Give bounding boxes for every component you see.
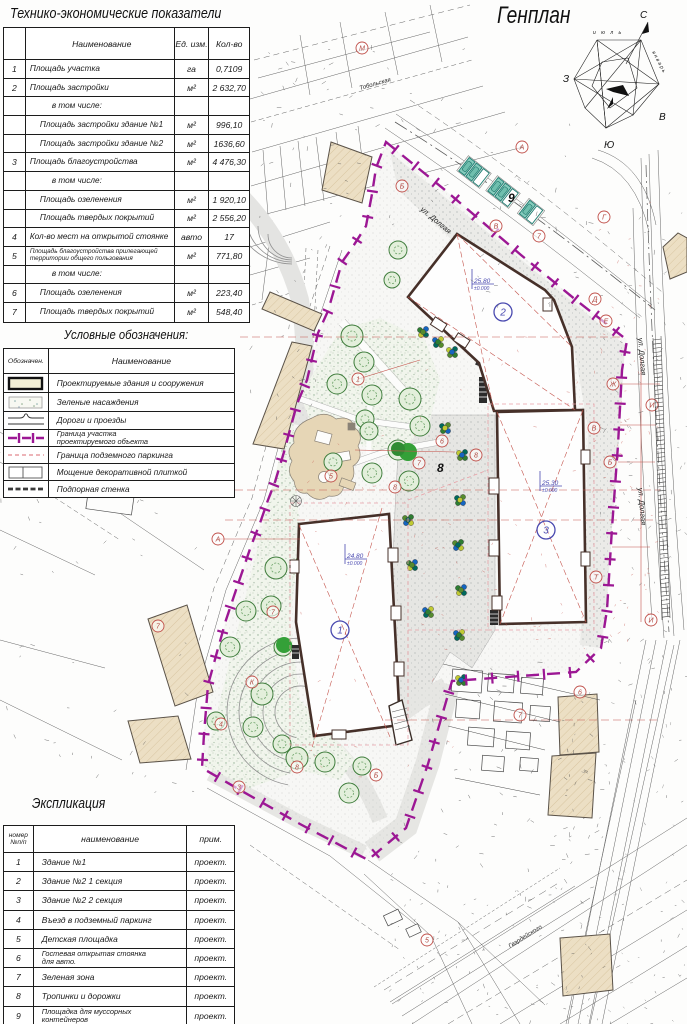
svg-text:З: З [563,74,569,85]
svg-text:4: 4 [219,722,223,729]
svg-text:8: 8 [474,453,478,460]
svg-text:Б: Б [400,184,405,191]
svg-text:±0.000: ±0.000 [347,561,362,567]
svg-text:Тобольская: Тобольская [359,77,392,92]
svg-text:±0.000: ±0.000 [474,286,489,292]
svg-text:2: 2 [499,308,506,319]
svg-text:М: М [359,46,365,53]
svg-text:А: А [215,537,221,544]
svg-text:Е: Е [604,319,609,326]
svg-text:В: В [659,112,666,123]
svg-text:С: С [640,10,648,21]
svg-text:1: 1 [337,626,343,637]
svg-text:6: 6 [578,690,582,697]
svg-text:ул. Долгая: ул. Долгая [636,336,648,375]
svg-text:Ж: Ж [609,382,617,389]
svg-text:Т: Т [594,575,599,582]
svg-text:3: 3 [237,785,241,792]
svg-text:Б: Б [374,773,379,780]
svg-text:В: В [592,426,597,433]
svg-text:8: 8 [437,461,444,475]
svg-text:Ю: Ю [604,140,614,151]
svg-text:9: 9 [508,191,515,205]
svg-text:5: 5 [425,938,429,945]
svg-text:5: 5 [329,474,333,481]
svg-text:1: 1 [356,377,360,384]
svg-text:В: В [494,224,499,231]
svg-text:Д: Д [592,297,598,304]
svg-text:24.80: 24.80 [346,553,364,560]
svg-text:8: 8 [393,485,397,492]
svg-text:ул. Долгая: ул. Долгая [636,486,648,525]
svg-text:и ю л ь: и ю л ь [593,30,623,36]
svg-text:Б: Б [608,460,613,467]
svg-text:январь: январь [650,49,668,75]
svg-text:25.80: 25.80 [473,278,491,285]
svg-text:8: 8 [295,765,299,772]
svg-text:Гвардейского: Гвардейского [507,923,544,949]
svg-text:±0.000: ±0.000 [542,488,557,494]
svg-text:6: 6 [440,439,444,446]
svg-text:3: 3 [543,526,549,537]
svg-text:А: А [519,145,525,152]
svg-text:25.30: 25.30 [541,480,559,487]
